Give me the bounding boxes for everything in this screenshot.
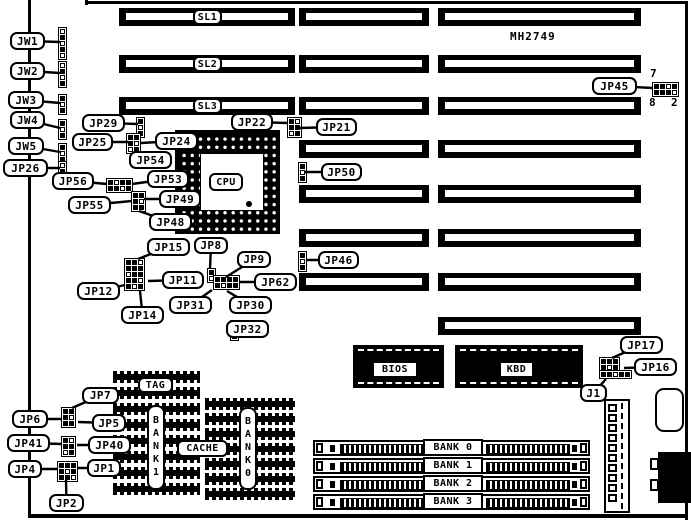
callout-jp5: JP5 (92, 414, 126, 432)
callout-jw2: JW2 (10, 62, 45, 80)
callout-jp14: JP14 (121, 306, 164, 324)
callout-jp21: JP21 (316, 118, 357, 136)
callout-jp9: JP9 (237, 251, 271, 268)
callout-jp11: JP11 (162, 271, 204, 289)
label-simm-bank1: BANK 1 (423, 457, 483, 474)
callout-jw1: JW1 (10, 32, 45, 50)
label-bank1-vertical: BANK1 (147, 405, 165, 490)
label-simm-bank2: BANK 2 (423, 475, 483, 492)
callout-jp29: JP29 (82, 114, 125, 132)
callout-jp6: JP6 (12, 410, 48, 428)
label-jp45-pin8: 8 (649, 96, 659, 108)
callout-jp16: JP16 (634, 358, 677, 376)
callout-jp46: JP46 (318, 251, 359, 269)
label-kbd: KBD (499, 361, 534, 378)
callout-jp62: JP62 (254, 273, 297, 291)
callout-jp4: JP4 (8, 460, 42, 478)
label-simm-bank3: BANK 3 (423, 493, 483, 510)
callout-jp48: JP48 (149, 213, 192, 231)
callout-jp56: JP56 (52, 172, 94, 190)
callout-jw4: JW4 (10, 111, 45, 129)
callout-jp40: JP40 (88, 436, 131, 454)
callout-jp45: JP45 (592, 77, 637, 95)
callout-jp30: JP30 (229, 296, 272, 314)
callout-jp22: JP22 (231, 113, 273, 131)
callout-jp17: JP17 (620, 336, 663, 354)
callout-jw3: JW3 (8, 91, 44, 109)
callout-jp32: JP32 (226, 320, 269, 338)
label-bios: BIOS (372, 361, 418, 378)
callout-jp26: JP26 (3, 159, 48, 177)
callout-jw5: JW5 (8, 137, 44, 155)
callout-jp50: JP50 (321, 163, 362, 181)
label-cache: CACHE (177, 440, 228, 457)
callout-jp53: JP53 (147, 170, 189, 188)
motherboard-diagram: JW1JW2JW3JW4JW5JP26JP29JP25JP24JP54JP56J… (0, 0, 691, 520)
callout-jp2: JP2 (49, 494, 84, 512)
callout-jp1: JP1 (87, 459, 121, 477)
callout-jp12: JP12 (77, 282, 120, 300)
callout-jp7: JP7 (82, 387, 119, 404)
label-sl3: SL3 (193, 98, 222, 114)
label-cpu: CPU (209, 173, 243, 191)
callout-jp25: JP25 (72, 133, 113, 151)
label-sl2: SL2 (193, 56, 222, 72)
callout-jp54: JP54 (129, 151, 172, 169)
callout-jp15: JP15 (147, 238, 190, 256)
label-bank0-vertical: BANK0 (239, 407, 257, 490)
callout-jp49: JP49 (159, 190, 201, 208)
callout-jp55: JP55 (68, 196, 111, 214)
label-simm-bank0: BANK 0 (423, 439, 483, 456)
label-tag: TAG (138, 377, 173, 393)
callout-jp31: JP31 (169, 296, 212, 314)
label-model-number: MH2749 (510, 30, 565, 43)
label-jp45-pin2: 2 (671, 96, 681, 108)
callout-j1: J1 (580, 384, 607, 402)
label-jp45-pin7: 7 (650, 67, 660, 79)
callout-jp24: JP24 (155, 132, 198, 150)
callout-jp41: JP41 (7, 434, 50, 452)
label-sl1: SL1 (193, 9, 222, 25)
callout-jp8: JP8 (194, 237, 228, 254)
